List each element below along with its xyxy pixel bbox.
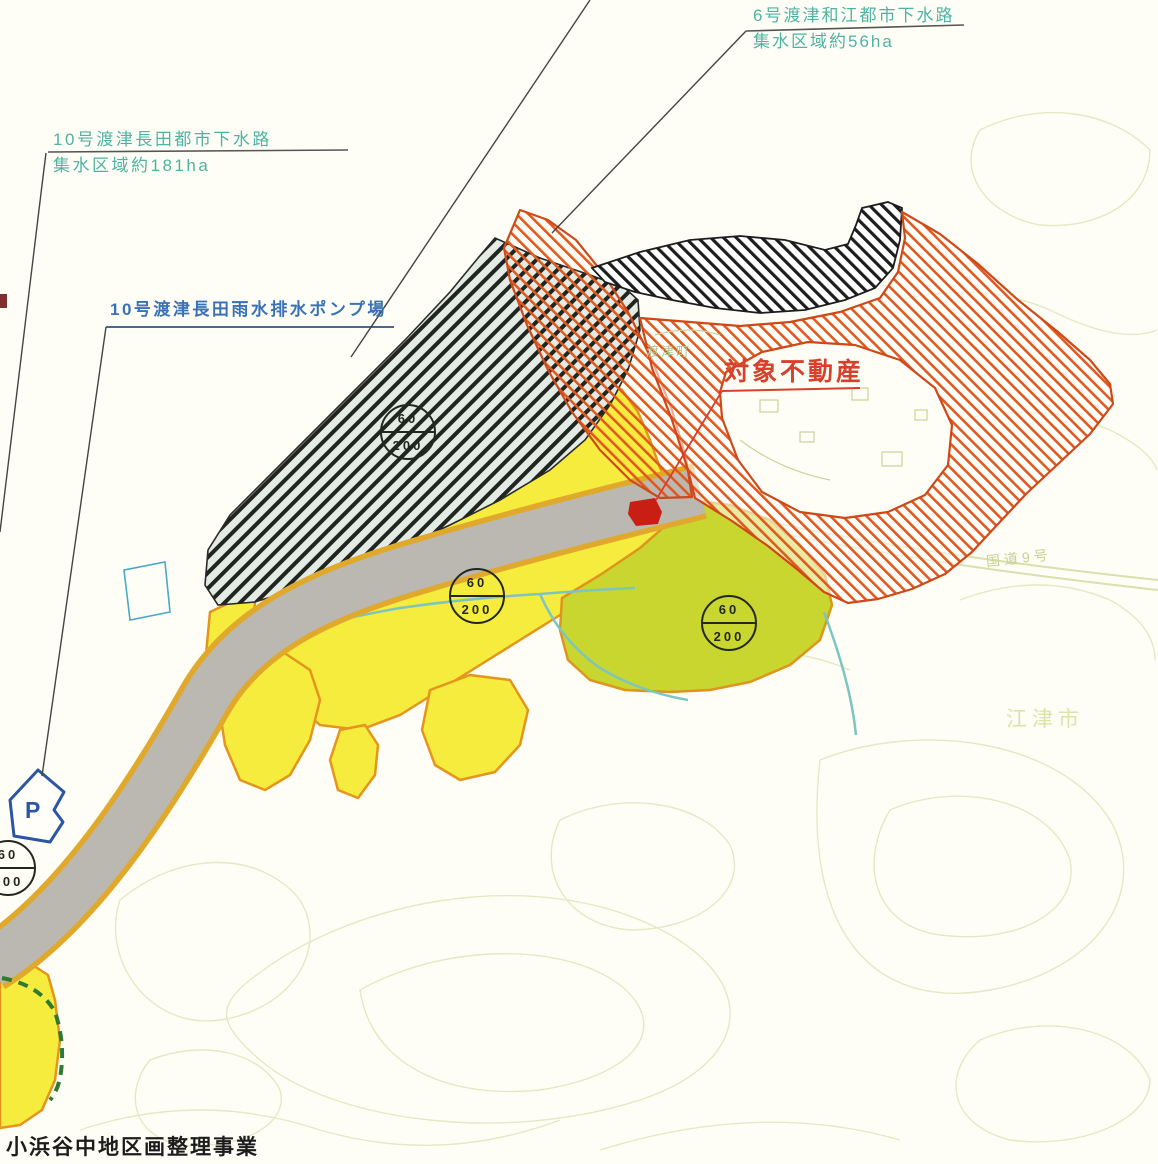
zoning-ratio-badge: 60 200: [701, 595, 757, 651]
label-city-gotsu: 江津市: [1006, 704, 1084, 736]
coverage-ratio-value: 60: [382, 406, 434, 431]
label-sewer-10-area: 集水区域約181ha: [53, 153, 272, 179]
coverage-ratio-value: 60: [703, 597, 755, 622]
label-pump-station: 10号渡津長田雨水排水ポンプ場: [110, 297, 387, 323]
label-town-watazu: 渡津町: [646, 342, 691, 362]
zoning-ratio-badge: 60 200: [380, 404, 436, 460]
label-bottom-note: 小浜谷中地区画整理事業: [6, 1132, 259, 1164]
label-sewer-district-6: 6号渡津和江都市下水路 集水区域約56ha: [753, 3, 954, 54]
label-sewer-6-name: 6号渡津和江都市下水路: [753, 3, 954, 29]
label-sewer-district-10: 10号渡津長田都市下水路 集水区域約181ha: [53, 127, 272, 178]
coverage-ratio-value: 60: [451, 570, 503, 595]
parking-letter: P: [25, 793, 40, 828]
zoning-map-page: { "labels": { "sewer_10": { "line1": "10…: [0, 0, 1158, 1157]
label-sewer-10-name: 10号渡津長田都市下水路: [53, 127, 272, 153]
zoning-ratio-badge: 60 200: [449, 568, 505, 624]
left-edge-mark: [0, 294, 7, 308]
label-sewer-6-area: 集水区域約56ha: [753, 29, 954, 55]
label-subject-property: 対象不動産: [724, 354, 864, 392]
